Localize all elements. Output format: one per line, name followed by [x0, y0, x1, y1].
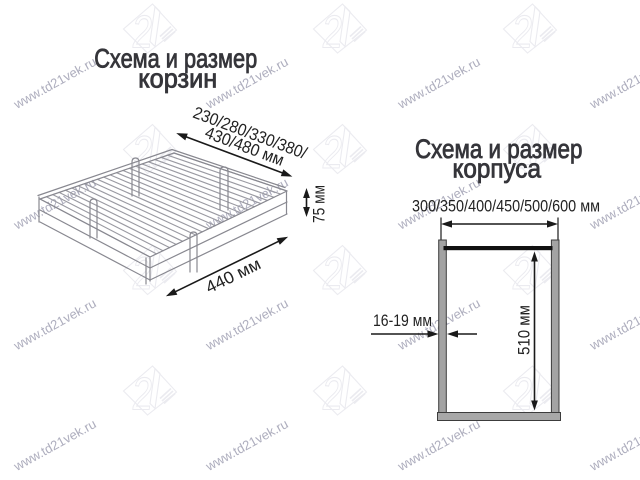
svg-text:www.td21vek.ru: www.td21vek.ru — [394, 416, 482, 474]
svg-text:16-19 мм: 16-19 мм — [373, 311, 432, 330]
svg-text:корпуса: корпуса — [452, 154, 541, 184]
svg-text:www.td21vek.ru: www.td21vek.ru — [202, 295, 290, 353]
svg-text:www.td21vek.ru: www.td21vek.ru — [586, 54, 640, 112]
svg-text:440 мм: 440 мм — [202, 254, 263, 297]
svg-text:www.td21vek.ru: www.td21vek.ru — [394, 54, 482, 112]
svg-text:www.td21vek.ru: www.td21vek.ru — [10, 295, 98, 353]
svg-text:www.td21vek.ru: www.td21vek.ru — [10, 54, 98, 112]
svg-text:корзин: корзин — [138, 64, 217, 94]
svg-text:www.td21vek.ru: www.td21vek.ru — [586, 295, 640, 353]
svg-text:75 мм: 75 мм — [310, 185, 329, 223]
svg-text:www.td21vek.ru: www.td21vek.ru — [10, 416, 98, 474]
svg-text:www.td21vek.ru: www.td21vek.ru — [586, 416, 640, 474]
svg-text:www.td21vek.ru: www.td21vek.ru — [202, 416, 290, 474]
svg-text:300/350/400/450/500/600 мм: 300/350/400/450/500/600 мм — [412, 197, 600, 216]
svg-text:510 мм: 510 мм — [515, 305, 534, 355]
